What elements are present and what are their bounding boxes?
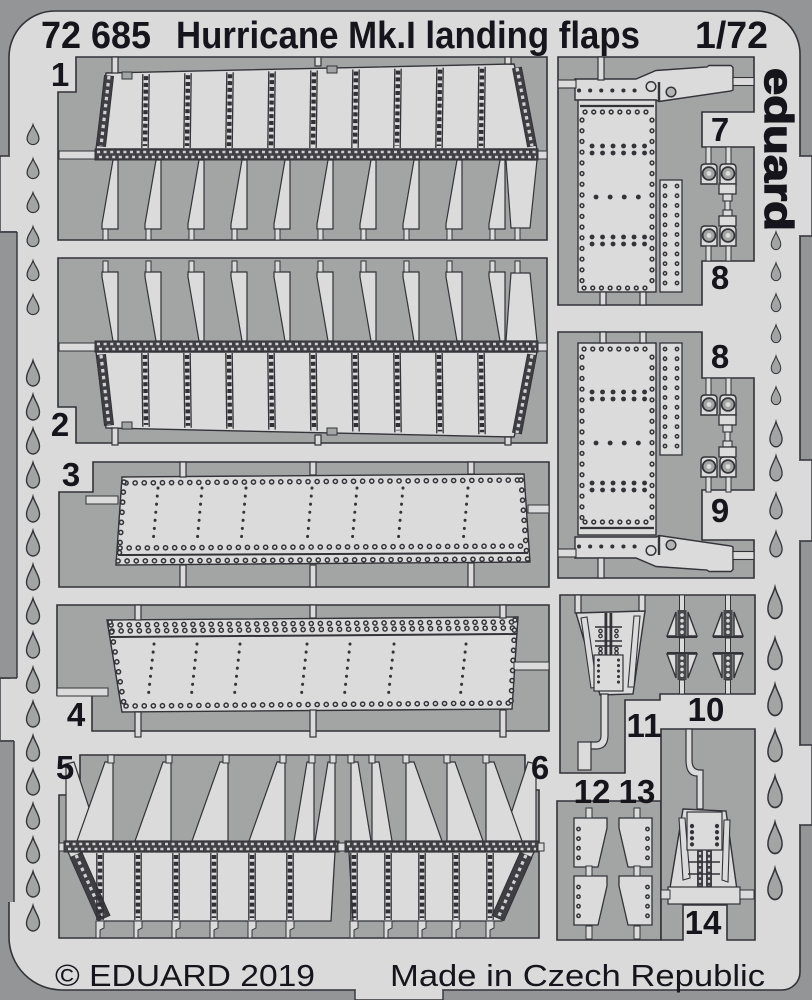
svg-text:8: 8 <box>711 259 729 296</box>
svg-text:13: 13 <box>619 773 656 810</box>
svg-text:4: 4 <box>67 696 86 733</box>
svg-text:7: 7 <box>711 111 729 148</box>
svg-text:5: 5 <box>56 749 74 786</box>
svg-text:1: 1 <box>51 56 69 93</box>
svg-text:6: 6 <box>531 749 549 786</box>
svg-text:9: 9 <box>711 492 729 529</box>
svg-text:2: 2 <box>51 406 69 443</box>
svg-text:Made in Czech Republic: Made in Czech Republic <box>390 958 765 993</box>
svg-text:11: 11 <box>627 707 662 744</box>
svg-text:3: 3 <box>62 456 80 493</box>
svg-text:14: 14 <box>685 904 722 941</box>
svg-text:Hurricane Mk.I landing flaps: Hurricane Mk.I landing flaps <box>176 15 640 57</box>
svg-text:72 685: 72 685 <box>41 15 151 57</box>
svg-text:10: 10 <box>688 691 725 728</box>
svg-text:eduard: eduard <box>756 68 800 231</box>
svg-text:8: 8 <box>711 338 729 375</box>
svg-text:12: 12 <box>574 773 611 810</box>
svg-text:1/72: 1/72 <box>695 15 768 57</box>
svg-text:© EDUARD 2019: © EDUARD 2019 <box>55 958 315 993</box>
